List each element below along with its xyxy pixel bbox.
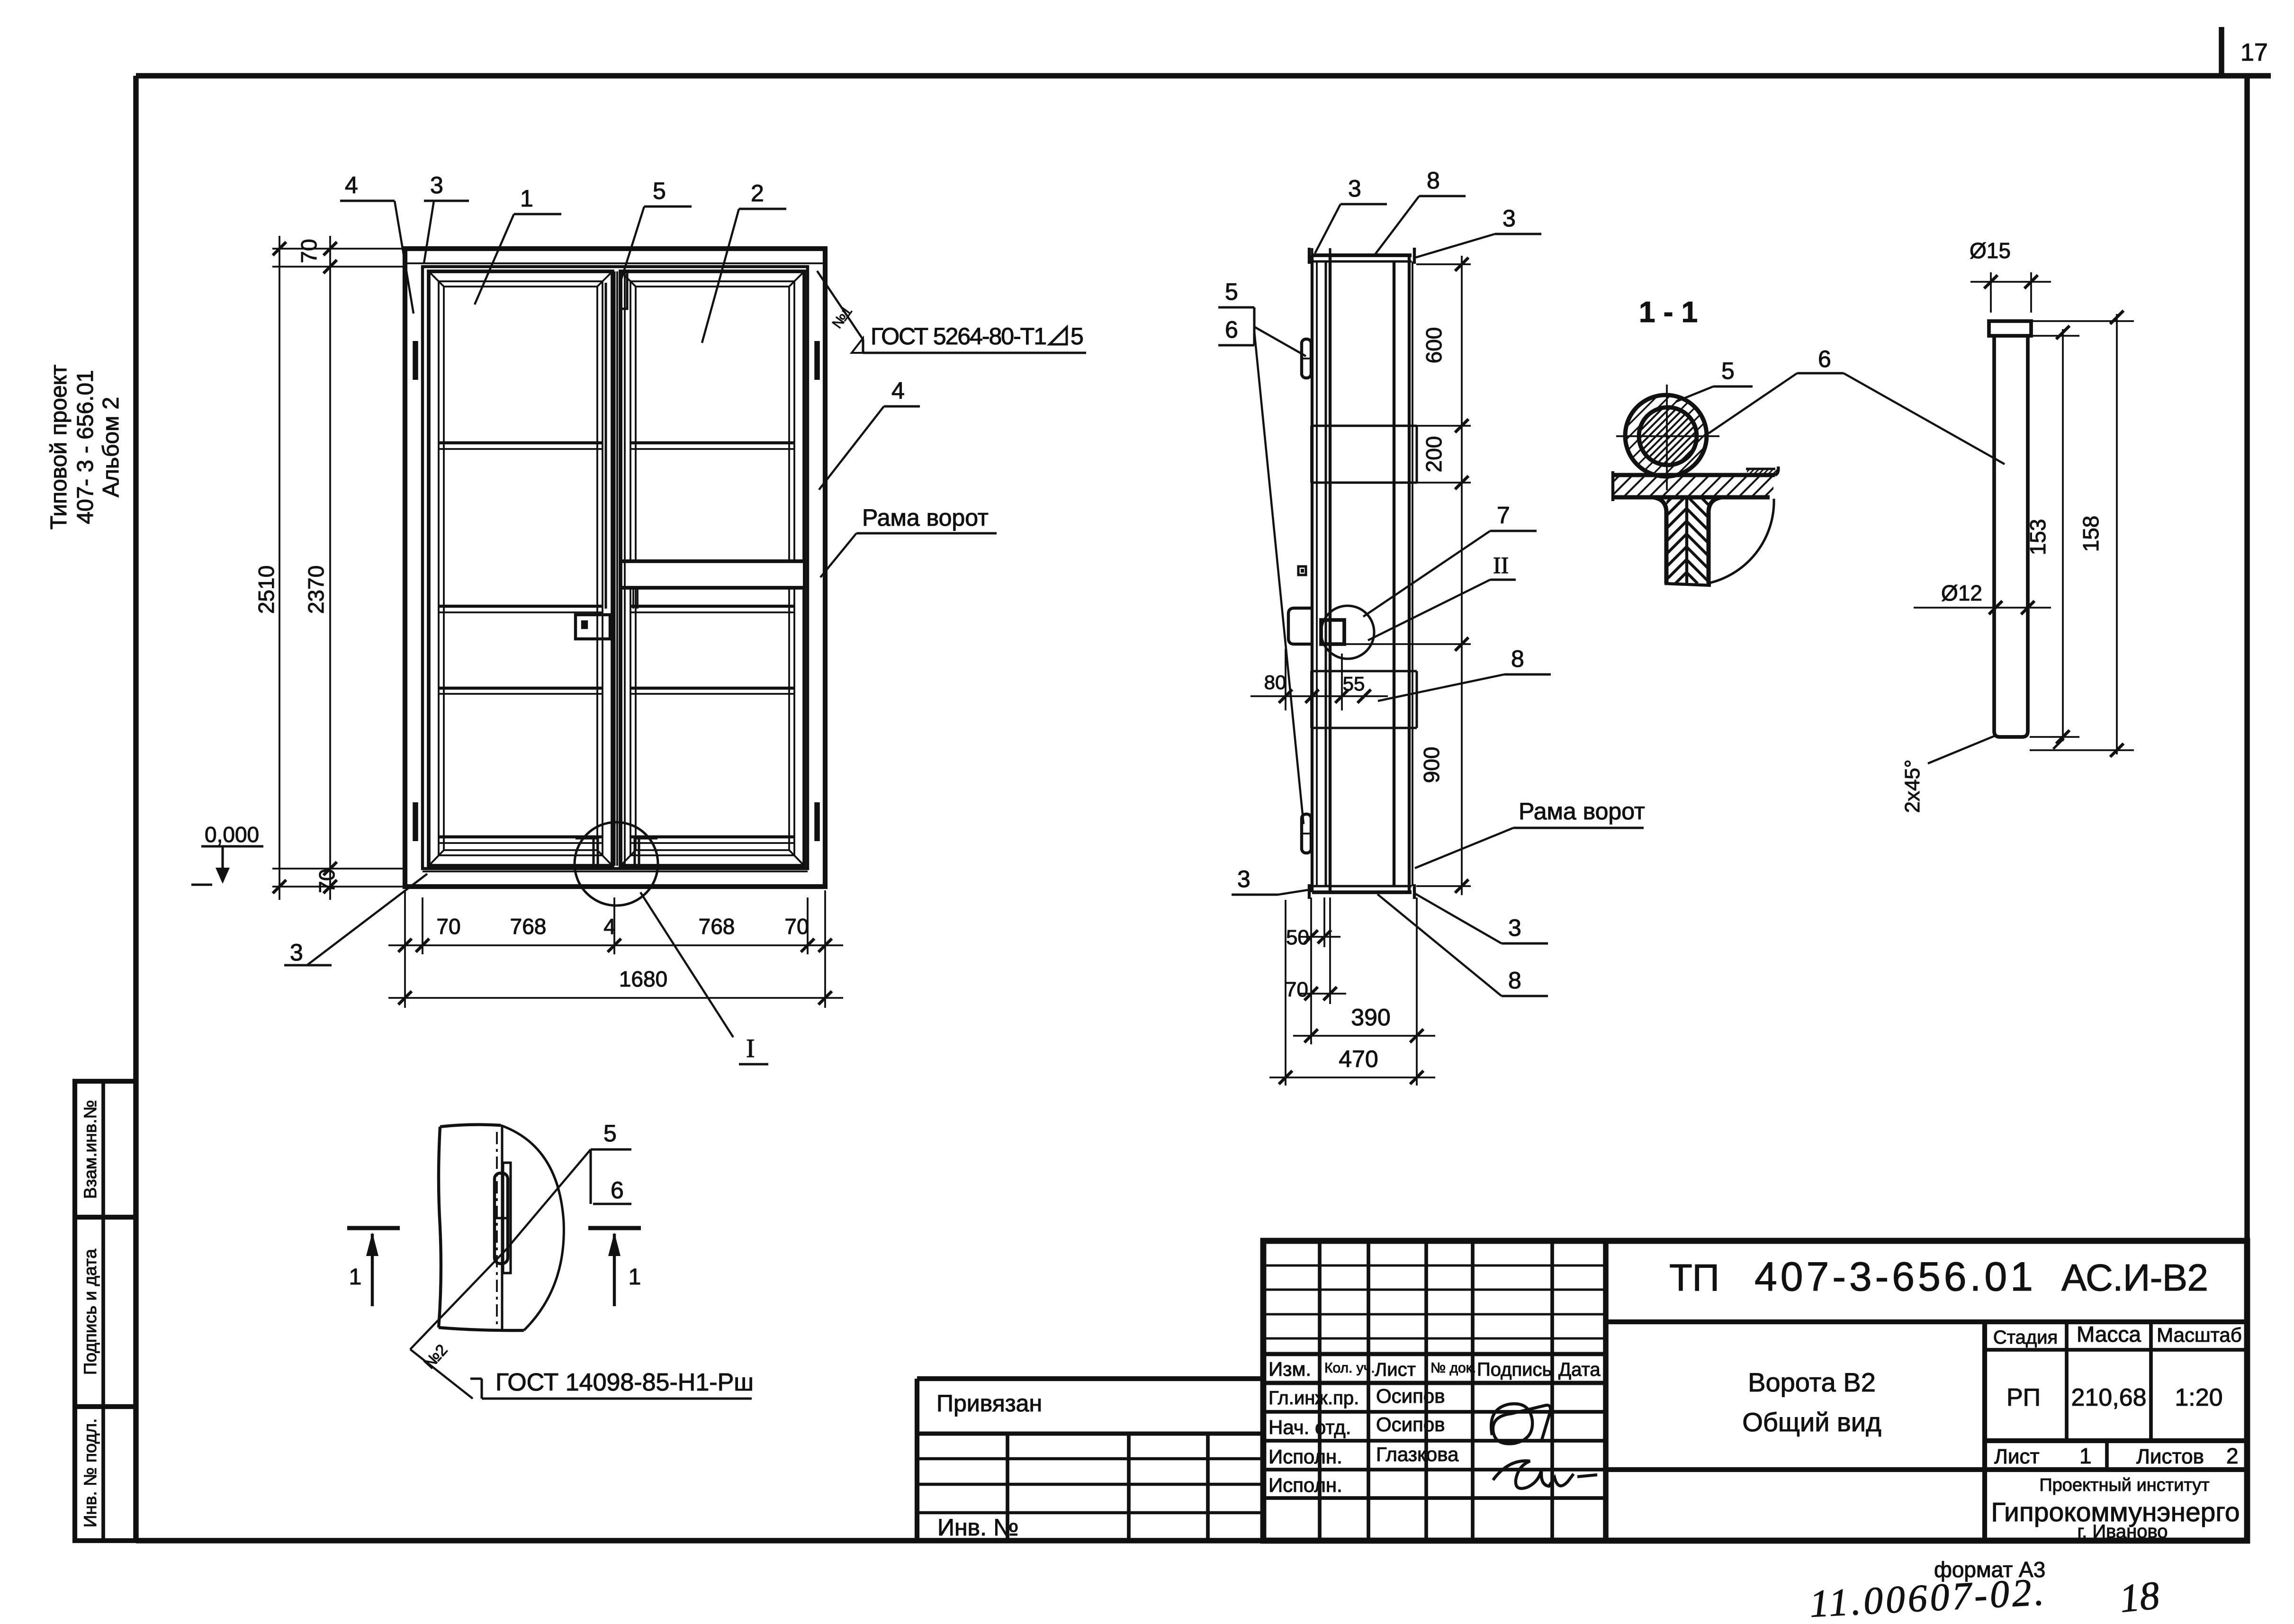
svg-text:3: 3 xyxy=(1237,866,1250,892)
svg-text:50: 50 xyxy=(1286,926,1309,949)
svg-text:900: 900 xyxy=(1419,747,1444,783)
svg-text:Инв. № подл.: Инв. № подл. xyxy=(81,1418,100,1527)
svg-text:3: 3 xyxy=(430,172,443,198)
svg-text:2510: 2510 xyxy=(254,565,279,614)
svg-text:5: 5 xyxy=(1721,358,1735,384)
svg-text:8: 8 xyxy=(1508,967,1521,994)
svg-text:407- 3 - 656.01: 407- 3 - 656.01 xyxy=(73,370,98,524)
svg-text:Рама ворот: Рама ворот xyxy=(862,504,989,531)
svg-text:5: 5 xyxy=(1225,278,1238,305)
svg-text:Лист: Лист xyxy=(1994,1445,2040,1468)
svg-text:Взам.инв.№: Взам.инв.№ xyxy=(81,1100,100,1199)
svg-text:5: 5 xyxy=(653,178,666,204)
svg-text:55: 55 xyxy=(1343,673,1365,695)
svg-text:г. Иваново: г. Иваново xyxy=(2077,1521,2168,1542)
svg-text:Кол. уч.: Кол. уч. xyxy=(1324,1360,1375,1376)
svg-text:5: 5 xyxy=(603,1120,617,1147)
svg-text:470: 470 xyxy=(1339,1046,1378,1072)
svg-text:4: 4 xyxy=(891,377,905,404)
svg-text:4: 4 xyxy=(345,172,358,198)
svg-text:18: 18 xyxy=(2117,1573,2161,1621)
svg-text:Осипов: Осипов xyxy=(1376,1413,1445,1436)
svg-text:Листов: Листов xyxy=(2136,1445,2204,1468)
svg-text:Подпись: Подпись xyxy=(1477,1359,1552,1380)
svg-text:4: 4 xyxy=(603,914,616,939)
svg-text:I: I xyxy=(746,1034,755,1063)
svg-text:1680: 1680 xyxy=(619,967,667,991)
svg-text:1 - 1: 1 - 1 xyxy=(1639,296,1698,329)
svg-text:70: 70 xyxy=(297,239,321,263)
svg-text:768: 768 xyxy=(510,914,547,939)
svg-text:153: 153 xyxy=(2025,519,2050,556)
svg-text:2: 2 xyxy=(2226,1444,2239,1468)
svg-text:Изм.: Изм. xyxy=(1268,1358,1311,1380)
svg-text:3: 3 xyxy=(1502,205,1516,232)
svg-text:Привязан: Привязан xyxy=(936,1390,1042,1417)
svg-text:Стадия: Стадия xyxy=(1993,1327,2058,1348)
svg-text:70: 70 xyxy=(1285,978,1308,1001)
svg-text:768: 768 xyxy=(699,914,735,939)
svg-text:Гл.инж.пр.: Гл.инж.пр. xyxy=(1268,1388,1359,1409)
svg-text:6: 6 xyxy=(1225,316,1238,343)
svg-text:8: 8 xyxy=(1427,167,1440,194)
svg-text:Инв. №: Инв. № xyxy=(937,1514,1019,1541)
svg-text:Подпись и дата: Подпись и дата xyxy=(81,1249,100,1375)
svg-text:Исполн.: Исполн. xyxy=(1268,1474,1342,1496)
svg-text:407-3-656.01: 407-3-656.01 xyxy=(1754,1254,2033,1300)
svg-text:Осипов: Осипов xyxy=(1376,1385,1445,1407)
svg-text:Лист: Лист xyxy=(1375,1359,1416,1380)
svg-text:РП: РП xyxy=(2006,1384,2041,1411)
svg-text:Дата: Дата xyxy=(1558,1359,1601,1380)
svg-text:1:20: 1:20 xyxy=(2175,1384,2222,1411)
svg-text:Типовой проект: Типовой проект xyxy=(46,365,72,529)
svg-text:0,000: 0,000 xyxy=(205,822,259,847)
svg-text:17: 17 xyxy=(2240,39,2268,66)
svg-text:Альбом 2: Альбом 2 xyxy=(99,397,124,497)
svg-text:1: 1 xyxy=(520,185,533,212)
svg-text:3: 3 xyxy=(1508,915,1521,941)
svg-text:2370: 2370 xyxy=(304,565,328,614)
svg-text:Ø12: Ø12 xyxy=(1941,581,1982,605)
svg-text:210,68: 210,68 xyxy=(2071,1384,2146,1411)
svg-text:3: 3 xyxy=(1348,175,1361,202)
svg-text:80: 80 xyxy=(1264,671,1286,693)
svg-text:АС.И-В2: АС.И-В2 xyxy=(2061,1256,2208,1299)
svg-text:Ворота В2: Ворота В2 xyxy=(1748,1367,1876,1397)
svg-text:1: 1 xyxy=(349,1265,362,1290)
svg-text:2x45°: 2x45° xyxy=(1901,759,1924,813)
svg-text:Ø15: Ø15 xyxy=(1970,238,2011,263)
svg-text:600: 600 xyxy=(1421,327,1446,364)
svg-text:Исполн.: Исполн. xyxy=(1268,1445,1342,1468)
svg-text:5: 5 xyxy=(1071,323,1084,350)
svg-text:ТП: ТП xyxy=(1669,1256,1719,1299)
svg-text:390: 390 xyxy=(1351,1004,1390,1031)
svg-text:Нач. отд.: Нач. отд. xyxy=(1268,1416,1351,1438)
svg-text:Общий вид: Общий вид xyxy=(1742,1407,1881,1437)
svg-text:7: 7 xyxy=(1497,502,1510,529)
svg-text:6: 6 xyxy=(611,1177,624,1203)
svg-text:70: 70 xyxy=(784,914,809,939)
svg-text:2: 2 xyxy=(751,180,764,206)
svg-text:6: 6 xyxy=(1818,346,1831,372)
svg-text:1: 1 xyxy=(629,1265,641,1290)
svg-text:Масштаб: Масштаб xyxy=(2157,1324,2242,1346)
svg-text:70: 70 xyxy=(315,869,339,893)
svg-text:3: 3 xyxy=(290,939,303,966)
svg-text:ГОСТ 14098-85-Н1-Рш: ГОСТ 14098-85-Н1-Рш xyxy=(495,1369,754,1396)
svg-text:II: II xyxy=(1493,552,1509,578)
svg-text:Проектный институт: Проектный институт xyxy=(2039,1475,2209,1495)
svg-text:1: 1 xyxy=(2079,1444,2092,1468)
svg-text:Рама ворот: Рама ворот xyxy=(1519,798,1645,825)
svg-text:70: 70 xyxy=(436,914,460,939)
svg-text:ГОСТ 5264-80-Т1: ГОСТ 5264-80-Т1 xyxy=(871,323,1047,350)
svg-text:158: 158 xyxy=(2078,516,2103,552)
svg-text:8: 8 xyxy=(1511,646,1524,672)
svg-text:№ док.: № док. xyxy=(1430,1360,1476,1376)
svg-text:Глазкова: Глазкова xyxy=(1376,1443,1459,1465)
svg-text:Масса: Масса xyxy=(2077,1322,2141,1346)
svg-text:200: 200 xyxy=(1421,436,1446,473)
